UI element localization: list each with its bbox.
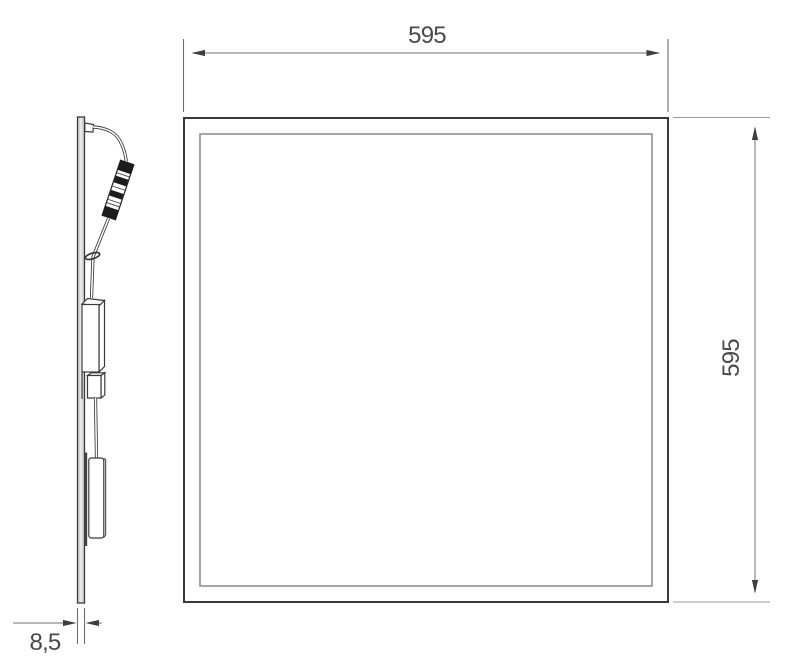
- side-view: [78, 117, 134, 603]
- dimension-width: 595: [184, 22, 669, 112]
- arrowhead-left: [192, 50, 206, 56]
- arrowhead-top: [752, 127, 758, 141]
- technical-drawing: 595 595 8,5: [0, 0, 800, 656]
- height-dimension-label: 595: [718, 339, 745, 377]
- arrowhead-right: [647, 50, 661, 56]
- arrowhead-bottom: [752, 580, 758, 594]
- arrowhead-left: [63, 620, 77, 626]
- front-view: [184, 118, 668, 602]
- cable-gland: [85, 123, 94, 132]
- power-cable-lower: [96, 398, 97, 458]
- junction-box: [89, 458, 106, 538]
- thickness-dimension-label: 8,5: [30, 629, 61, 656]
- dimension-thickness: 8,5: [13, 608, 102, 656]
- terminal-box: [82, 372, 105, 399]
- power-connector: [102, 160, 134, 219]
- width-dimension-label: 595: [408, 22, 446, 49]
- arrowhead-right: [86, 620, 100, 626]
- panel-diffuser: [200, 134, 652, 586]
- driver-box: [82, 299, 105, 373]
- power-cable-upper: [93, 127, 126, 162]
- dimension-height: 595: [673, 118, 770, 603]
